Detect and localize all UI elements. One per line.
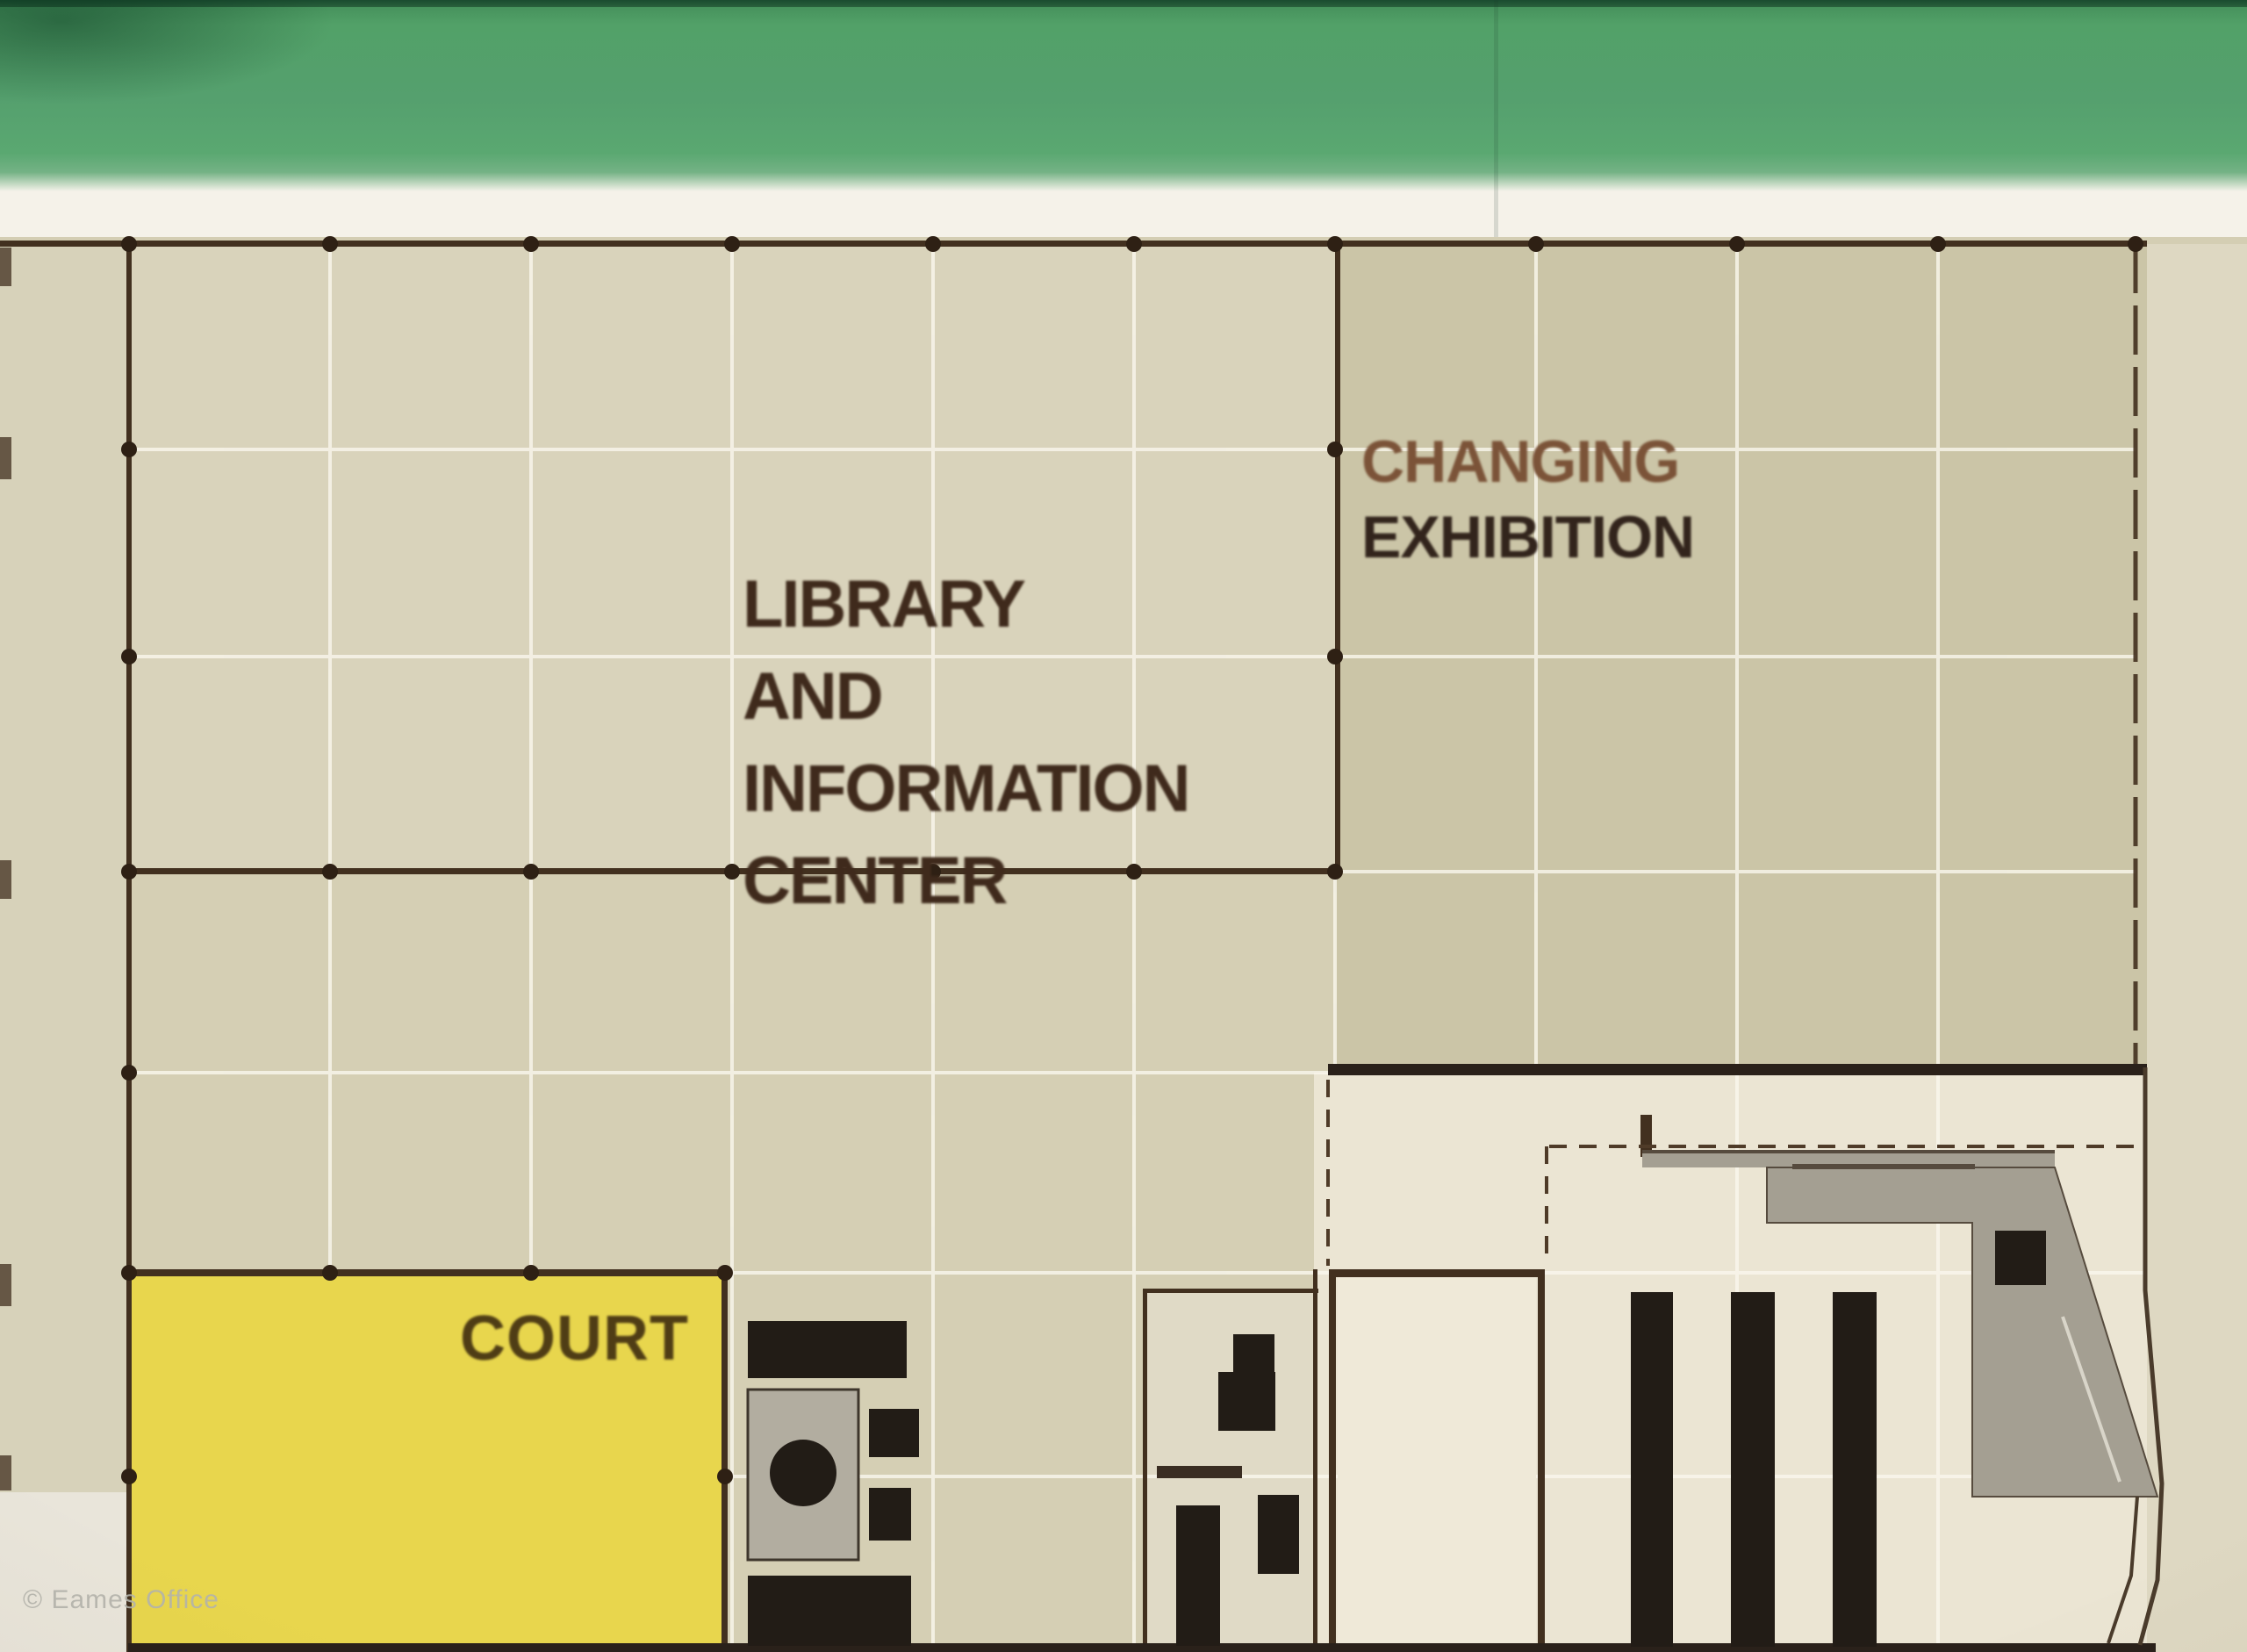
auditorium-north-wall <box>1328 1064 2147 1075</box>
library-exhibition-divider <box>1335 244 1340 872</box>
changing-exhibition-label-line: CHANGING <box>1361 424 1694 499</box>
library-label: LIBRARY AND INFORMATION CENTER <box>743 558 1189 927</box>
copyright-watermark: © Eames Office <box>23 1585 219 1615</box>
small-room-north-wall <box>1329 1269 1545 1277</box>
left-margin <box>0 244 129 1652</box>
north-wall <box>0 241 2147 247</box>
counter-bottom-bar <box>748 1576 911 1646</box>
stage-equipment-block <box>1995 1231 2046 1285</box>
seating-rows <box>1631 1292 1877 1647</box>
round-table <box>770 1440 836 1506</box>
small-room-east-wall <box>1538 1269 1545 1652</box>
small-room-floor <box>1338 1277 1536 1652</box>
library-label-line: AND <box>743 650 1189 743</box>
court-north-wall <box>128 1269 729 1276</box>
middle-room-west-wall <box>1143 1289 1147 1652</box>
library-label-line: CENTER <box>743 835 1189 927</box>
counter-top-bar <box>748 1321 907 1378</box>
court-east-wall <box>721 1269 728 1652</box>
changing-exhibition-label: CHANGING EXHIBITION <box>1361 424 1694 575</box>
film-still-floor-plan: LIBRARY AND INFORMATION CENTER CHANGING … <box>0 0 2247 1652</box>
changing-exhibition-label-line: EXHIBITION <box>1361 499 1694 575</box>
right-margin <box>2147 244 2247 1652</box>
court-label: COURT <box>460 1303 689 1375</box>
library-label-line: INFORMATION <box>743 743 1189 835</box>
library-label-line: LIBRARY <box>743 558 1189 650</box>
middle-room-north-wall <box>1143 1289 1318 1293</box>
shelf-line <box>1157 1466 1242 1478</box>
left-margin-bottom <box>0 1492 129 1652</box>
